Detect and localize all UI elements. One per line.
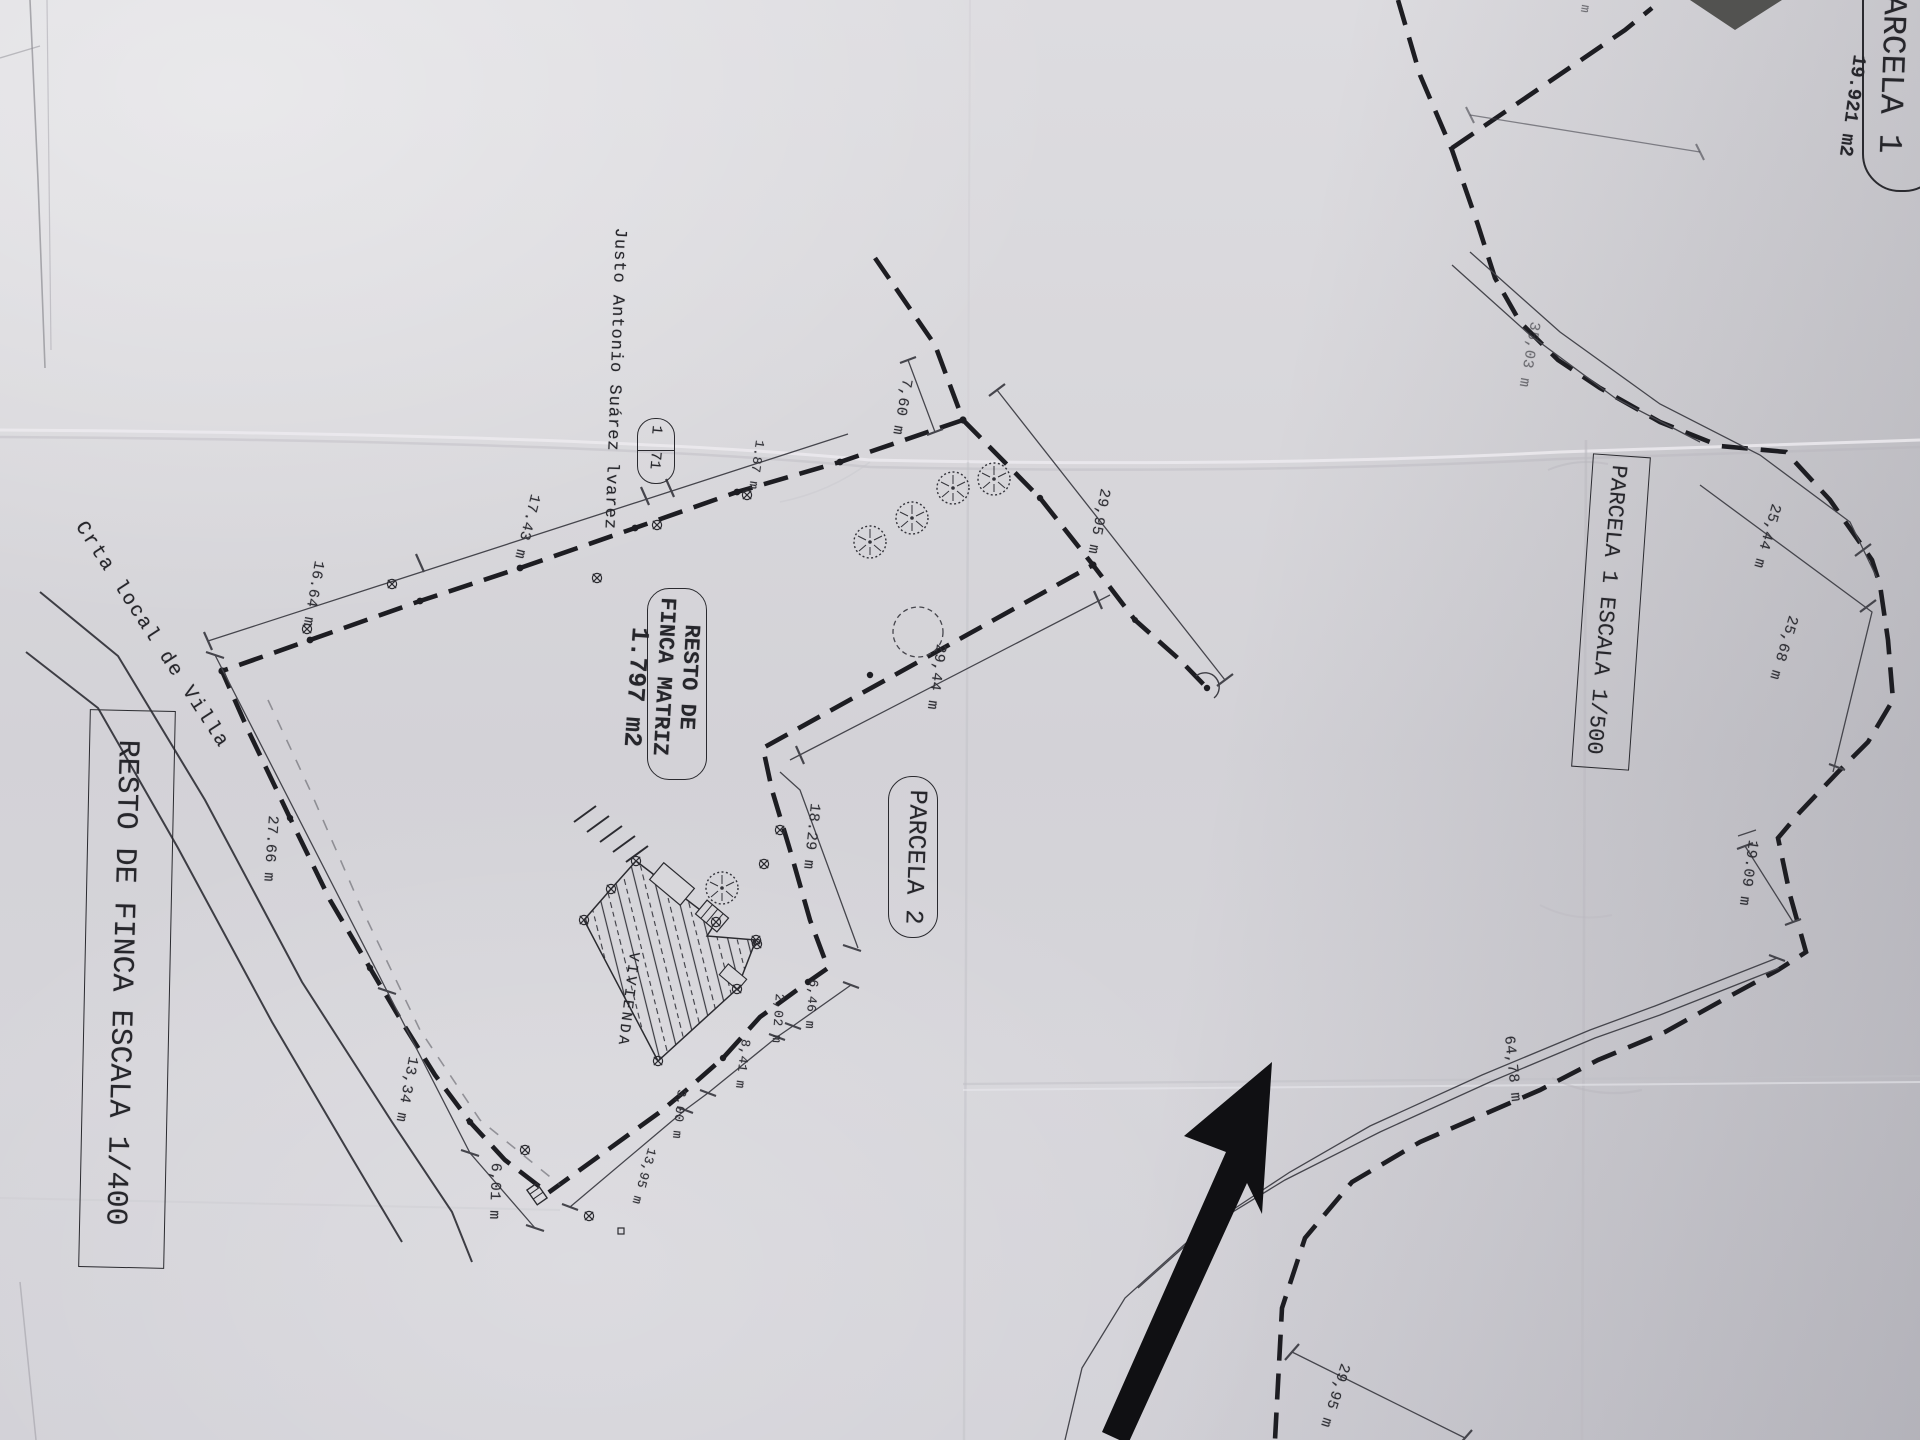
scanned-parcel-plan: RESTO DE FINCA ESCALA 1/400 Crta local d… bbox=[0, 0, 1920, 1440]
parcel-ref-top: 1 bbox=[648, 425, 664, 435]
easement-dashed-line bbox=[268, 700, 560, 1185]
tree-icon bbox=[937, 472, 969, 504]
tree-icon bbox=[978, 463, 1010, 495]
tree-icon bbox=[854, 526, 886, 558]
boundary-vertex-dots bbox=[218, 416, 1210, 1125]
dimension-label-601: 6,01 m bbox=[485, 1162, 503, 1220]
resto-box-line1: RESTO DE bbox=[674, 624, 703, 731]
paper-edges bbox=[0, 0, 1782, 1440]
table-background-sliver bbox=[1690, 0, 1782, 30]
tree-icon bbox=[896, 502, 928, 534]
parcel-ref-bottom: 71 bbox=[646, 451, 663, 470]
dimension-label-646: 6,46 m bbox=[802, 979, 820, 1030]
dimension-lines-right bbox=[1065, 107, 1877, 1440]
boundary-left-plan bbox=[222, 258, 1207, 1193]
entrance-stair-bars bbox=[574, 806, 648, 862]
dimension-label-2766: 27.66 m bbox=[260, 815, 280, 882]
tree-icon bbox=[706, 872, 738, 904]
dimension-label-202: 2,02 m bbox=[769, 993, 786, 1044]
dimension-lines-left bbox=[204, 357, 1233, 1231]
house-footprint bbox=[574, 806, 756, 1061]
parcela2-label: PARCELA 2 bbox=[899, 789, 930, 925]
survey-markers bbox=[302, 490, 784, 1234]
north-arrow-icon bbox=[1102, 1062, 1272, 1440]
parcela1-label: PARCELA 1 bbox=[1870, 0, 1911, 154]
